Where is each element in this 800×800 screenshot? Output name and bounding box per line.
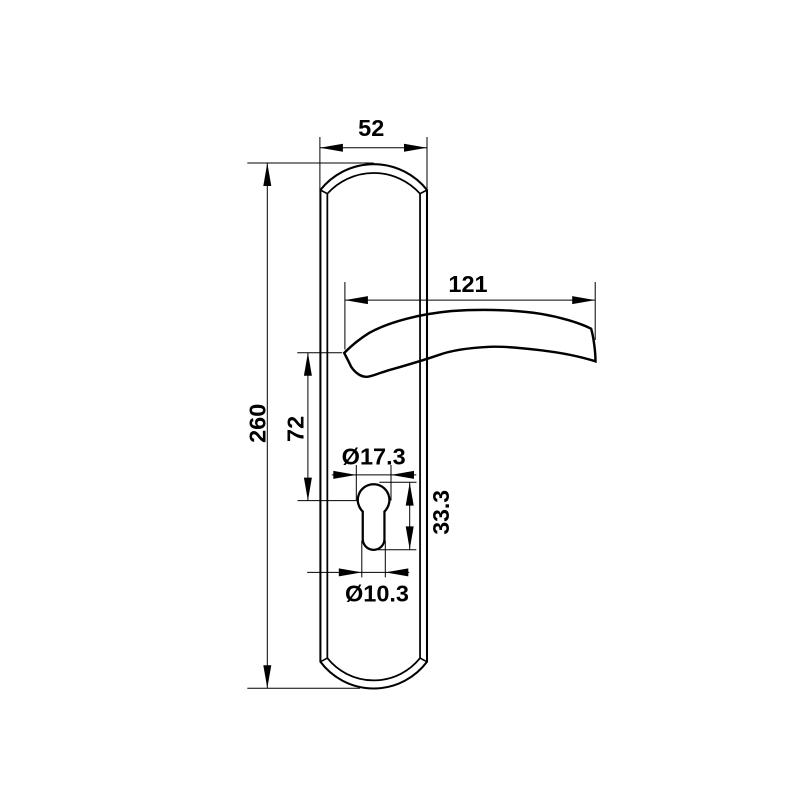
svg-text:121: 121 [448, 271, 487, 297]
svg-text:260: 260 [245, 404, 271, 443]
svg-text:Ø17.3: Ø17.3 [342, 443, 406, 469]
svg-text:52: 52 [358, 115, 384, 141]
svg-text:Ø10.3: Ø10.3 [345, 581, 409, 607]
svg-text:33.3: 33.3 [428, 490, 454, 535]
svg-text:72: 72 [283, 416, 309, 442]
